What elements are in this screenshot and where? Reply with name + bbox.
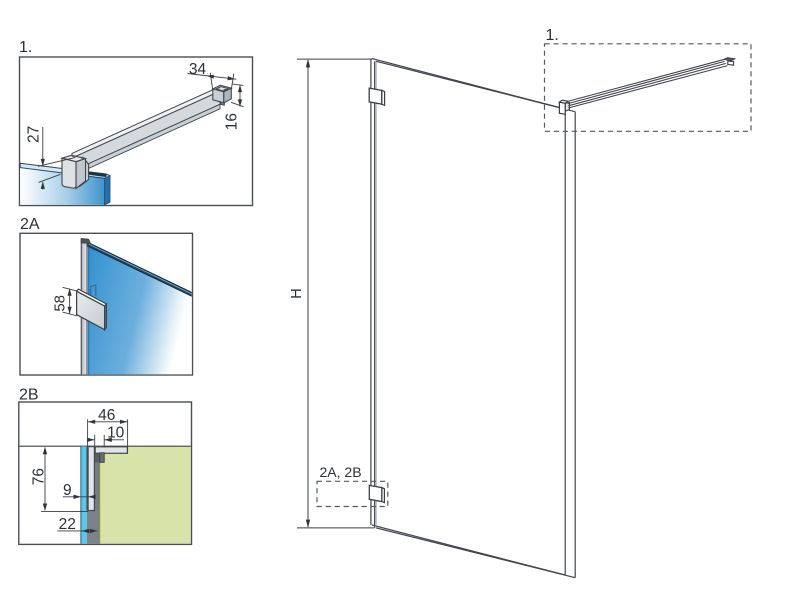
- svg-text:16: 16: [223, 113, 240, 130]
- svg-text:22: 22: [59, 516, 76, 533]
- svg-text:1.: 1.: [19, 39, 32, 56]
- svg-text:2A, 2B: 2A, 2B: [320, 464, 362, 480]
- svg-text:9: 9: [63, 482, 72, 499]
- svg-text:2A: 2A: [20, 216, 40, 233]
- svg-text:2B: 2B: [19, 387, 39, 404]
- svg-text:58: 58: [52, 295, 69, 312]
- svg-text:46: 46: [98, 407, 115, 424]
- svg-text:H: H: [289, 288, 305, 298]
- svg-text:1.: 1.: [546, 27, 559, 44]
- svg-text:27: 27: [26, 126, 43, 143]
- svg-text:34: 34: [189, 61, 207, 78]
- svg-text:76: 76: [31, 468, 48, 485]
- svg-text:10: 10: [107, 424, 125, 441]
